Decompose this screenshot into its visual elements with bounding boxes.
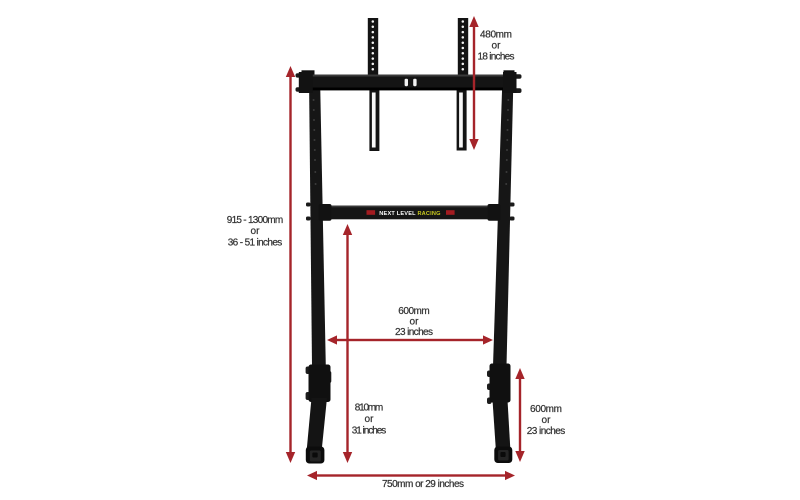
svg-text:600mm: 600mm: [398, 306, 430, 317]
svg-text:or: or: [251, 226, 261, 237]
svg-text:18 inches: 18 inches: [478, 52, 515, 63]
svg-text:480mm: 480mm: [480, 30, 512, 41]
svg-text:810mm: 810mm: [355, 403, 384, 414]
svg-text:NEXT LEVEL RACING: NEXT LEVEL RACING: [379, 211, 440, 217]
svg-text:31 inches: 31 inches: [352, 426, 387, 437]
svg-text:600mm: 600mm: [530, 404, 562, 415]
svg-text:23 inches: 23 inches: [527, 426, 566, 437]
svg-text:or: or: [492, 41, 502, 52]
svg-text:23 inches: 23 inches: [395, 327, 433, 338]
svg-text:915 - 1300mm: 915 - 1300mm: [227, 215, 284, 226]
svg-text:750mm or 29 inches: 750mm or 29 inches: [382, 479, 464, 490]
svg-text:or: or: [410, 317, 420, 328]
svg-text:or: or: [542, 415, 552, 426]
svg-text:36 - 51 inches: 36 - 51 inches: [228, 238, 283, 249]
svg-text:or: or: [365, 414, 375, 425]
